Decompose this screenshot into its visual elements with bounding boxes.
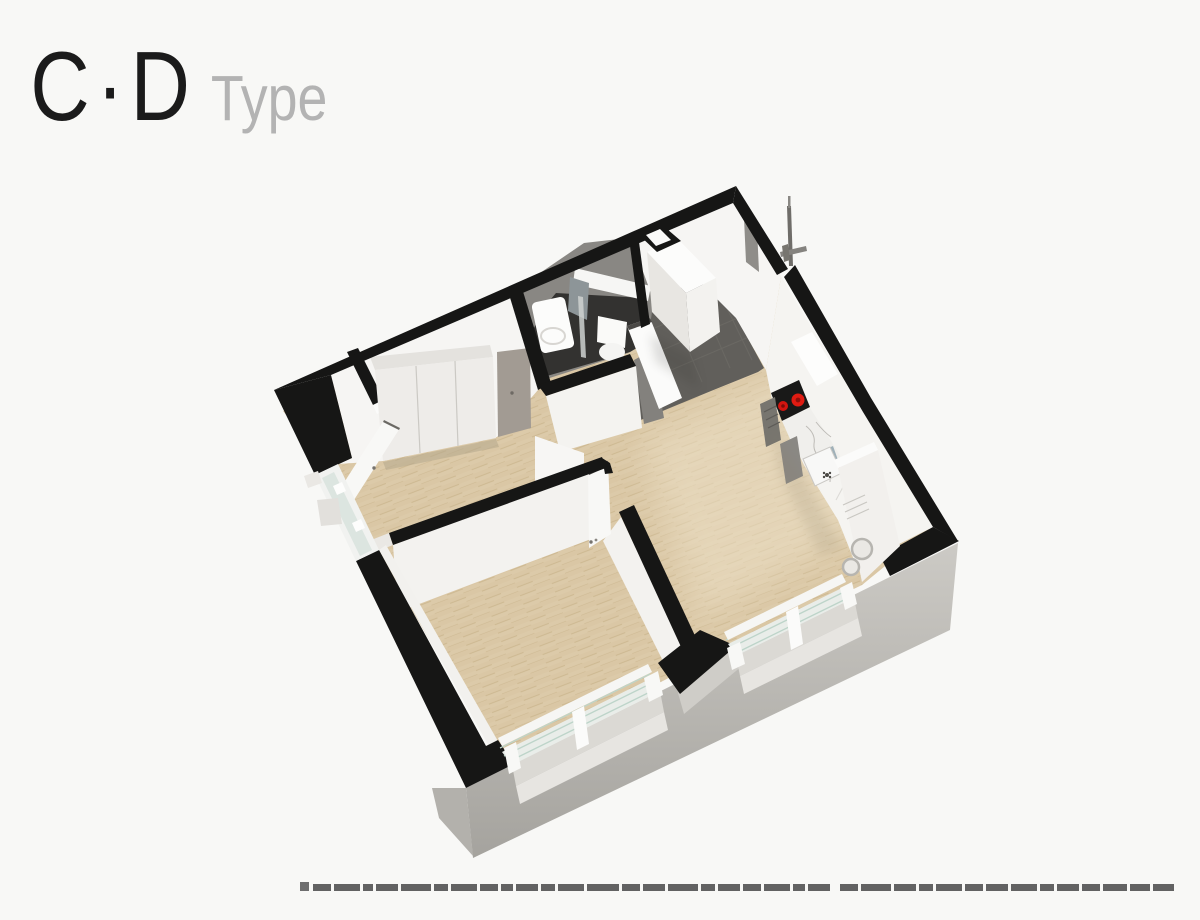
svg-text:C·D: C·D — [30, 32, 196, 141]
svg-text:Type: Type — [211, 62, 328, 135]
